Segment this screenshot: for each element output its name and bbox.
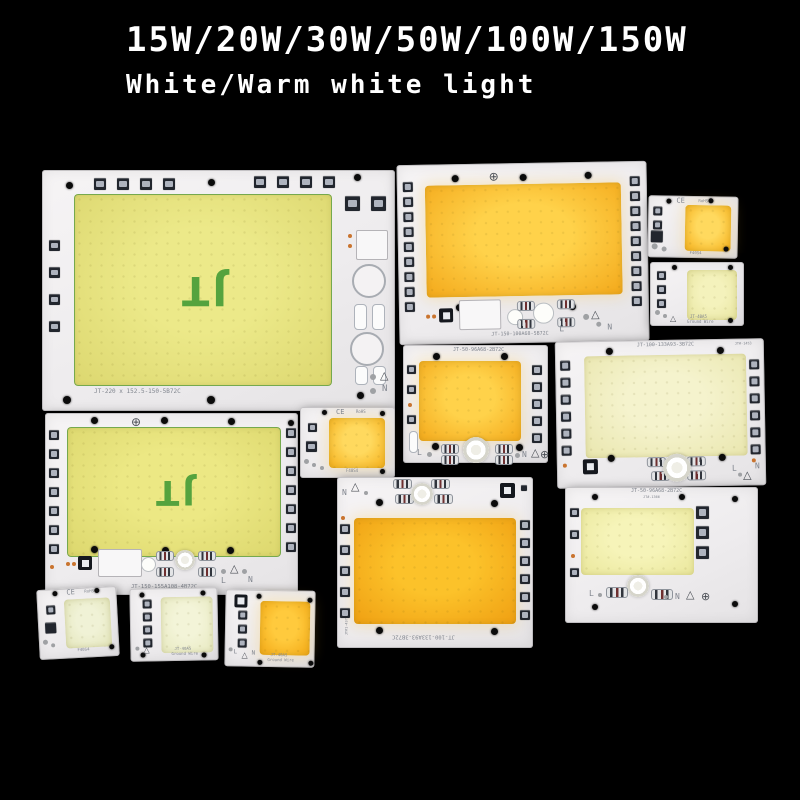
- led-emitting-area: [419, 361, 521, 441]
- board-label: L: [221, 577, 226, 585]
- mounting-hole: [91, 546, 98, 553]
- smd-chip-window: [407, 289, 413, 294]
- led-emitting-area: [329, 418, 385, 468]
- solder-pad-dot: [652, 243, 658, 249]
- smd-chip-window: [144, 602, 149, 607]
- band-resistor: [156, 567, 174, 577]
- solder-pad-dot: [229, 647, 233, 651]
- led-board-15w-white-small-2: △JT-40A5Ground Wire: [129, 587, 218, 662]
- smd-chip: [657, 299, 666, 308]
- mounting-hole: [592, 494, 598, 500]
- smd-chip-window: [632, 208, 638, 213]
- smd-chip: [560, 361, 570, 371]
- smd-chip-window: [534, 384, 540, 389]
- band-resistor: [393, 479, 412, 489]
- board-label: RoHS: [84, 589, 94, 593]
- smd-chip-window: [534, 435, 540, 440]
- smd-chip-window: [406, 244, 412, 249]
- mounting-hole: [357, 392, 364, 399]
- solder-pad-dot: [427, 452, 432, 457]
- board-label: N: [522, 451, 527, 459]
- band-resistor: [517, 319, 535, 329]
- solder-pad-dot: [320, 466, 324, 470]
- driver-ic-chip: [583, 459, 598, 474]
- smd-chip-window: [564, 448, 570, 453]
- driver-ic-window: [504, 487, 512, 495]
- smd-chip-window: [342, 526, 348, 531]
- smd-chip: [561, 412, 571, 422]
- board-label: JT-50-96A68-2B72C: [631, 489, 682, 494]
- small-resistor-dot: [66, 562, 70, 566]
- smd-chip-window: [634, 283, 640, 288]
- smd-chip: [308, 423, 317, 432]
- mounting-hole: [717, 347, 724, 354]
- mounting-hole: [200, 590, 205, 595]
- board-label: RoHS: [356, 410, 366, 414]
- mounting-hole: [161, 417, 168, 424]
- smd-chip-window: [342, 547, 348, 552]
- mounting-hole: [109, 644, 114, 649]
- smd-chip-window: [288, 506, 294, 511]
- smd-chip-window: [325, 179, 332, 185]
- smd-chip: [520, 610, 530, 620]
- smd-chip: [46, 605, 55, 614]
- smd-chip: [632, 281, 642, 291]
- smd-chip-window: [406, 259, 412, 264]
- ic-outline-pad: [356, 230, 388, 260]
- mounting-hole: [432, 443, 439, 450]
- smd-chip-window: [96, 181, 103, 187]
- smd-chip: [300, 176, 312, 188]
- led-emitting-area: [584, 353, 748, 458]
- smd-chip: [117, 178, 129, 190]
- led-emitting-area: JT: [67, 427, 281, 557]
- smd-chip: [286, 447, 296, 457]
- band-resistor: [606, 587, 628, 598]
- solder-pad-dot: [51, 643, 55, 647]
- smd-chip: [696, 506, 709, 519]
- smd-chip: [407, 415, 416, 424]
- band-resistor: [495, 444, 513, 454]
- smd-chip: [520, 574, 530, 584]
- band-resistor: [441, 444, 459, 454]
- smd-chip-window: [405, 184, 411, 189]
- small-resistor-dot: [571, 554, 575, 558]
- smd-chip-window: [406, 274, 412, 279]
- smd-chip-window: [655, 222, 660, 227]
- mounting-keyhole: [350, 332, 384, 366]
- smd-chip: [520, 538, 530, 548]
- smd-chip: [570, 508, 579, 517]
- solder-pad-dot: [664, 595, 668, 599]
- smd-chip: [143, 625, 152, 634]
- smd-chip-window: [563, 397, 569, 402]
- mounting-hole: [592, 604, 598, 610]
- driver-ic-chip: [439, 308, 453, 322]
- board-label: CE: [676, 198, 685, 205]
- mounting-hole: [376, 499, 383, 506]
- small-resistor-dot: [341, 516, 345, 520]
- board-label: F40S4: [690, 251, 702, 255]
- mounting-hole: [376, 627, 383, 634]
- solder-pad-dot: [370, 388, 376, 394]
- smd-chip: [630, 176, 640, 186]
- board-label: JT-100-133A93-3B72C: [637, 342, 694, 348]
- led-emitting-area: [161, 596, 214, 653]
- smd-chip: [630, 191, 640, 201]
- small-resistor-dot: [348, 234, 352, 238]
- solder-pad-dot: [598, 593, 602, 597]
- small-resistor-dot: [563, 464, 567, 468]
- mounting-hole: [719, 454, 726, 461]
- led-emitting-area: JT: [74, 194, 332, 386]
- smd-chip: [238, 638, 247, 647]
- board-label: RoHS: [698, 199, 708, 203]
- solder-pad-dot: [655, 310, 660, 315]
- smd-chip-window: [51, 324, 58, 330]
- smd-chip-window: [405, 214, 411, 219]
- smd-chip-window: [51, 432, 57, 437]
- smd-chip-window: [699, 509, 707, 516]
- mounting-hole: [679, 494, 685, 500]
- smd-chip: [143, 599, 152, 608]
- mounting-hole: [208, 179, 215, 186]
- smd-chip-window: [51, 489, 57, 494]
- driver-ic-chip: [78, 556, 92, 570]
- warning-triangle-icon: △: [143, 646, 149, 654]
- solder-pad-dot: [663, 314, 667, 318]
- smd-chip-window: [751, 362, 757, 367]
- smd-chip-window: [659, 273, 664, 278]
- warning-triangle-icon: △: [591, 309, 600, 320]
- smd-chip-window: [632, 193, 638, 198]
- small-resistor-dot: [432, 315, 436, 319]
- mounting-hole: [732, 496, 738, 502]
- smd-chip-window: [51, 527, 57, 532]
- smd-chip: [407, 365, 416, 374]
- smd-chip: [404, 272, 414, 282]
- smd-chip-window: [48, 607, 54, 612]
- mounting-hole: [94, 588, 99, 593]
- band-resistor: [557, 299, 575, 309]
- smd-chip: [657, 285, 666, 294]
- capacitor-bulb: [141, 557, 156, 572]
- smd-chip: [520, 556, 530, 566]
- smd-chip: [49, 468, 59, 478]
- led-board-20w-white-small-right: △JT-40A5Ground Wire: [650, 262, 744, 326]
- smd-chip: [532, 433, 542, 443]
- driver-ic-chip: [234, 594, 247, 607]
- led-board-50w-warm-mid: JT-50-96A68-2B72CLN△⊕: [403, 345, 548, 463]
- smd-chip: [340, 545, 350, 555]
- smd-chip-window: [632, 178, 638, 183]
- warning-triangle-icon: △: [670, 315, 676, 323]
- smd-chip: [140, 178, 152, 190]
- mounting-hole: [63, 396, 71, 404]
- smd-chip: [49, 321, 60, 332]
- board-label: Ground Wire: [267, 658, 294, 662]
- led-board-150w-large-white: JT△NJT-220 x 152.5-150-5B72C: [42, 170, 395, 411]
- smd-chip: [340, 566, 350, 576]
- mounting-hole: [433, 353, 440, 360]
- smd-chip: [630, 206, 640, 216]
- smd-chip-window: [407, 304, 413, 309]
- smd-chip-window: [239, 641, 244, 646]
- board-label: JT-150-100A68-5B72C: [491, 332, 548, 338]
- smd-chip-window: [240, 627, 245, 632]
- smd-chip: [631, 251, 641, 261]
- smd-chip-window: [145, 628, 150, 633]
- smd-chip-window: [51, 270, 58, 276]
- smd-chip-window: [288, 430, 294, 435]
- smd-chip-window: [752, 430, 758, 435]
- small-resistor-dot: [426, 315, 430, 319]
- board-label: JT-100-133A93-3B72C: [392, 633, 455, 639]
- smd-chip: [45, 622, 57, 634]
- board-label: N: [382, 385, 387, 394]
- board-label: L: [417, 449, 422, 457]
- smd-chip: [306, 441, 317, 452]
- screw-head-icon: ⊕: [489, 170, 499, 182]
- capsule-component: [372, 304, 385, 330]
- capacitor-bulb: [533, 302, 554, 323]
- smd-chip-window: [633, 253, 639, 258]
- smd-chip-window: [51, 546, 57, 551]
- toroid-component: [463, 437, 489, 463]
- smd-chip-window: [142, 181, 149, 187]
- led-board-20w-warm-small-top: CERoHSF40S4: [647, 195, 738, 259]
- smd-chip-window: [348, 200, 357, 208]
- smd-chip: [49, 267, 60, 278]
- smd-chip-window: [288, 544, 294, 549]
- smd-chip: [570, 568, 579, 577]
- smd-chip-window: [659, 301, 664, 306]
- led-board-150w-white-left: JT⊕△LNJT-150-155A108-4B72C: [45, 413, 298, 595]
- band-resistor: [441, 455, 459, 465]
- smd-chip: [254, 176, 266, 188]
- mounting-hole: [728, 318, 733, 323]
- smd-chip-window: [165, 181, 172, 187]
- smd-chip: [371, 196, 386, 211]
- board-label: F40S4: [77, 647, 89, 652]
- capsule-component: [355, 366, 368, 385]
- band-resistor: [198, 551, 216, 561]
- board-label: F40S4: [346, 469, 358, 473]
- toroid-component: [411, 483, 433, 505]
- smd-chip: [49, 487, 59, 497]
- mounting-hole: [322, 410, 327, 415]
- smd-chip-window: [409, 367, 414, 372]
- smd-chip: [521, 485, 527, 491]
- smd-chip: [143, 612, 152, 621]
- board-label: N: [675, 593, 680, 601]
- smd-chip-window: [522, 576, 528, 581]
- smd-chip: [570, 530, 579, 539]
- smd-chip: [631, 236, 641, 246]
- led-board-15w-white-small-1: CERoHSF40S4: [36, 586, 120, 660]
- board-label: JT-50-96A68-2B72C: [453, 348, 504, 353]
- led-board-50w-white-bottom: JT-50-96A68-2B72CJT#-1366LN△⊕: [565, 487, 758, 623]
- toroid-component: [175, 550, 195, 570]
- board-label: N: [755, 462, 760, 470]
- mounting-hole: [724, 247, 729, 252]
- board-label: JT#-1453: [735, 342, 752, 346]
- smd-chip: [286, 542, 296, 552]
- smd-chip-window: [145, 615, 150, 620]
- smd-chip: [750, 410, 760, 420]
- led-board-15w-warm-small-3: L△NJT-40A5Ground Wire: [224, 589, 315, 668]
- solder-pad-dot: [662, 246, 667, 251]
- led-emitting-area: [687, 270, 737, 320]
- smd-chip: [277, 176, 289, 188]
- smd-chip: [345, 196, 360, 211]
- led-emitting-area: [425, 182, 623, 297]
- mounting-hole: [66, 182, 73, 189]
- smd-chip-window: [752, 413, 758, 418]
- band-resistor: [198, 567, 216, 577]
- smd-chip-window: [374, 200, 383, 208]
- board-label: Ground Wire: [687, 320, 714, 324]
- led-board-100w-white-right: JT-100-133A93-3B72CJT#-1453LN△: [555, 338, 767, 489]
- smd-chip: [520, 592, 530, 602]
- driver-ic-window: [238, 598, 245, 605]
- board-label: L: [234, 649, 238, 655]
- smd-chip: [749, 359, 759, 369]
- smd-chip: [532, 382, 542, 392]
- mounting-hole: [228, 418, 235, 425]
- smd-chip: [403, 197, 413, 207]
- mounting-hole: [288, 420, 294, 426]
- smd-chip: [404, 227, 414, 237]
- smd-chip-window: [572, 532, 577, 537]
- smd-chip-window: [634, 298, 640, 303]
- smd-chip-window: [409, 387, 414, 392]
- warning-triangle-icon: △: [380, 370, 388, 381]
- mounting-hole: [139, 593, 144, 598]
- smd-chip: [532, 365, 542, 375]
- mounting-hole: [491, 500, 498, 507]
- driver-ic-window: [587, 463, 595, 471]
- smd-chip: [750, 427, 760, 437]
- mounting-hole: [452, 175, 459, 182]
- smd-chip-window: [342, 610, 348, 615]
- board-label: L: [559, 325, 564, 333]
- mounting-keyhole: [352, 264, 386, 298]
- smd-chip-window: [51, 470, 57, 475]
- mounting-hole: [728, 265, 733, 270]
- board-label: CE: [66, 589, 75, 596]
- board-label: JT-220 x 152.5-150-5B72C: [94, 389, 181, 395]
- smd-chip: [286, 466, 296, 476]
- mounting-hole: [520, 174, 527, 181]
- solder-pad-dot: [242, 569, 247, 574]
- smd-chip-window: [288, 449, 294, 454]
- mounting-hole: [491, 628, 498, 635]
- smd-chip-window: [522, 612, 528, 617]
- smd-chip-window: [240, 613, 245, 618]
- band-resistor: [156, 551, 174, 561]
- smd-chip-window: [288, 468, 294, 473]
- led-emitting-area: [260, 601, 311, 656]
- band-resistor: [517, 301, 535, 311]
- smd-chip: [403, 182, 413, 192]
- smd-chip: [631, 266, 641, 276]
- driver-ic-chip: [500, 483, 515, 498]
- smd-chip: [651, 230, 663, 242]
- jt-logo-mark: JT: [179, 267, 227, 313]
- smd-chip: [49, 449, 59, 459]
- led-board-20w-warm-small-mid: CERoHSF40S4: [300, 407, 395, 478]
- mounting-hole: [207, 396, 215, 404]
- smd-chip-window: [308, 444, 315, 450]
- warning-triangle-icon: △: [531, 447, 539, 458]
- smd-chip-window: [51, 297, 58, 303]
- board-label: N: [607, 323, 612, 331]
- smd-chip: [407, 385, 416, 394]
- smd-chip-window: [751, 379, 757, 384]
- smd-chip-window: [753, 447, 759, 452]
- smd-chip-window: [288, 487, 294, 492]
- smd-chip: [340, 608, 350, 618]
- smd-chip: [520, 520, 530, 530]
- smd-chip: [405, 287, 415, 297]
- mounting-hole: [672, 265, 677, 270]
- mounting-hole: [380, 469, 385, 474]
- smd-chip: [340, 524, 350, 534]
- solder-pad-dot: [135, 647, 139, 651]
- solder-pad-dot: [312, 463, 316, 467]
- screw-head-icon: ⊕: [540, 449, 549, 460]
- board-label: Ground Wire: [171, 652, 198, 656]
- mounting-hole: [52, 591, 57, 596]
- mounting-hole: [606, 348, 613, 355]
- solder-pad-dot: [304, 459, 309, 464]
- solder-pad-dot: [515, 453, 520, 458]
- led-emitting-area: [354, 518, 516, 624]
- smd-chip: [696, 546, 709, 559]
- smd-chip: [696, 526, 709, 539]
- smd-chip-window: [51, 508, 57, 513]
- smd-chip: [49, 525, 59, 535]
- led-emitting-area: [685, 205, 732, 252]
- mounting-hole: [354, 174, 361, 181]
- board-label: L: [589, 590, 594, 598]
- band-resistor: [434, 494, 453, 504]
- mounting-hole: [732, 601, 738, 607]
- smd-chip-window: [752, 396, 758, 401]
- smd-chip-window: [405, 199, 411, 204]
- product-photo-canvas: 15W/20W/30W/50W/100W/150W White/Warm whi…: [0, 0, 800, 800]
- smd-chip: [657, 271, 666, 280]
- mounting-hole: [257, 594, 262, 599]
- smd-chip: [561, 429, 571, 439]
- small-resistor-dot: [348, 244, 352, 248]
- warning-triangle-icon: △: [230, 563, 238, 574]
- small-resistor-dot: [50, 565, 54, 569]
- driver-ic-window: [82, 560, 89, 567]
- smd-chip: [286, 428, 296, 438]
- smd-chip-window: [562, 363, 568, 368]
- smd-chip: [163, 178, 175, 190]
- small-resistor-dot: [72, 562, 76, 566]
- smd-chip-window: [699, 549, 707, 556]
- smd-chip: [749, 376, 759, 386]
- smd-chip: [404, 242, 414, 252]
- smd-chip: [403, 212, 413, 222]
- mounting-hole: [608, 455, 615, 462]
- smd-chip-window: [633, 238, 639, 243]
- smd-chip: [653, 206, 662, 215]
